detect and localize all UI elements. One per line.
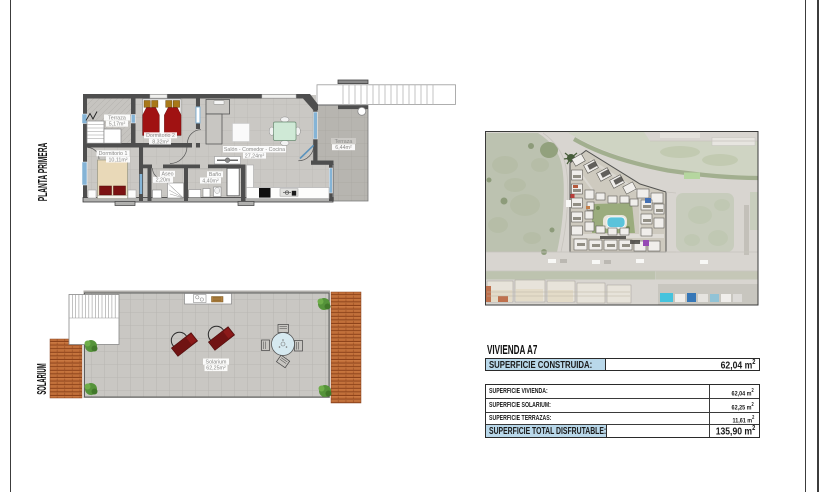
svg-text:8,32m²: 8,32m² bbox=[152, 139, 169, 145]
svg-text:Dormitorio 1: Dormitorio 1 bbox=[99, 151, 128, 157]
svg-text:Terraza: Terraza bbox=[108, 115, 126, 121]
svg-text:Terraza: Terraza bbox=[335, 139, 353, 145]
svg-text:5,17m²: 5,17m² bbox=[109, 122, 126, 128]
svg-text:Salón - Comedor - Cocina: Salón - Comedor - Cocina bbox=[224, 147, 285, 153]
svg-text:Baño: Baño bbox=[209, 172, 221, 178]
svg-text:27,24m²: 27,24m² bbox=[245, 153, 265, 159]
svg-text:Solarium: Solarium bbox=[206, 359, 227, 365]
svg-text:Dormitorio 2: Dormitorio 2 bbox=[146, 133, 175, 139]
svg-text:10,11m²: 10,11m² bbox=[108, 157, 127, 163]
svg-text:6,44m²: 6,44m² bbox=[335, 145, 352, 151]
svg-text:62,25m²: 62,25m² bbox=[206, 366, 226, 372]
svg-text:2,20m: 2,20m bbox=[156, 178, 171, 184]
svg-text:4,40m²: 4,40m² bbox=[202, 178, 219, 184]
